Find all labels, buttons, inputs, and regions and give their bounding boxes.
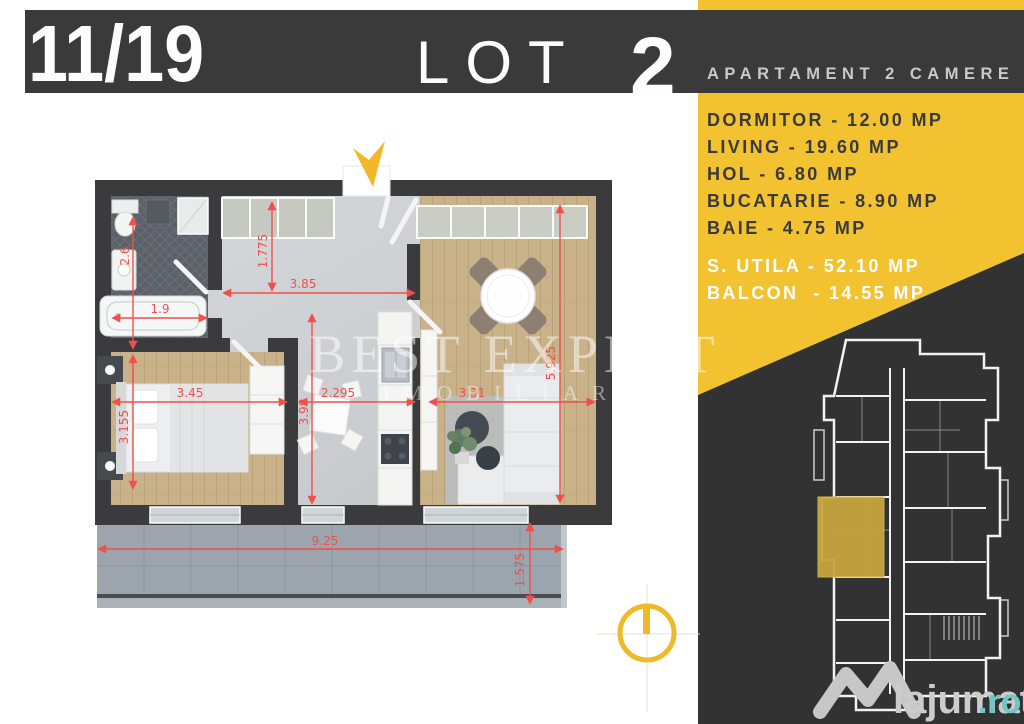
agency-watermark: BEST EXPERT IMOBILIARE <box>309 324 720 405</box>
total-utila: S. UTILA - 52.10 MP <box>707 256 925 283</box>
doors <box>176 198 440 370</box>
lot-label: LOT <box>416 33 581 93</box>
dim-living-height: 5.925 <box>544 346 558 380</box>
coffee-table <box>455 411 489 445</box>
dim-living-width: 3.31 <box>459 386 486 400</box>
watermark-line1: BEST EXPERT <box>309 324 720 384</box>
windows <box>150 507 528 523</box>
compass-icon <box>596 584 700 712</box>
living-cabinets <box>417 206 587 238</box>
apartment-plan <box>95 166 612 608</box>
balcony-edge <box>97 594 567 598</box>
bed-headboard <box>116 382 126 474</box>
room-living: LIVING - 19.60 MP <box>707 137 943 164</box>
kitchen-sink <box>382 348 409 382</box>
stove <box>381 434 409 464</box>
dim-balcony-depth: 1.575 <box>513 553 527 587</box>
walls <box>95 180 612 525</box>
kitchen-counter <box>378 312 412 505</box>
dim-bedroom-height: 3.155 <box>117 410 131 444</box>
dim-hall-top: 1.775 <box>256 234 270 268</box>
dim-kitchen-width: 2.295 <box>321 386 355 400</box>
room-area-list: DORMITOR - 12.00 MP LIVING - 19.60 MP HO… <box>707 110 943 245</box>
dining-table <box>481 269 535 323</box>
room-bucatarie: BUCATARIE - 8.90 MP <box>707 191 943 218</box>
total-balcon: BALCON - 14.55 MP <box>707 283 925 310</box>
dimension-labels: 2.6 1.9 1.775 3.85 3.45 3.155 3.98 2.295… <box>117 234 558 587</box>
bedroom-floor <box>111 352 284 505</box>
apartment-fraction: 11/19 <box>28 14 204 94</box>
dim-balcony-width: 9.25 <box>312 534 339 548</box>
sofa <box>504 364 560 504</box>
room-hol: HOL - 6.80 MP <box>707 164 943 191</box>
living-floor <box>420 196 596 505</box>
watermark-line2: IMOBILIARE <box>383 381 647 405</box>
kitchen-table <box>310 395 351 436</box>
room-dormitor: DORMITOR - 12.00 MP <box>707 110 943 137</box>
dimension-lines <box>99 203 594 603</box>
plant <box>447 427 477 464</box>
entrance-arrow-icon <box>353 141 385 187</box>
hall-cabinets <box>222 198 334 238</box>
total-area-list: S. UTILA - 52.10 MP BALCON - 14.55 MP <box>707 256 925 310</box>
dim-hall-width: 3.85 <box>290 277 317 291</box>
wardrobe <box>250 366 284 454</box>
bed <box>126 384 248 472</box>
living-furniture <box>421 255 562 504</box>
dim-tub: 1.9 <box>150 302 169 316</box>
dim-bath-height: 2.6 <box>118 246 132 265</box>
apartment-subtitle: APARTAMENT 2 CAMERE <box>707 66 1014 83</box>
rug <box>446 396 562 504</box>
dining-chairs <box>467 255 549 337</box>
bathtub <box>100 296 206 336</box>
bathroom-fixtures <box>100 198 208 336</box>
entrance-threshold <box>343 166 390 196</box>
kitchen-furniture <box>297 312 412 505</box>
balcony <box>97 523 567 608</box>
dim-kitchen-height: 3.98 <box>297 399 311 426</box>
tv-cabinet <box>421 330 437 470</box>
lot-number: 2 <box>630 26 676 108</box>
coffee-table-small <box>476 446 500 470</box>
room-baie: BAIE - 4.75 MP <box>707 218 943 245</box>
listing-poster: 11/19 LOT 2 APARTAMENT 2 CAMERE DORMITOR… <box>0 0 1024 724</box>
bathroom-floor <box>111 196 208 338</box>
dim-bedroom-width: 3.45 <box>177 386 204 400</box>
bedroom-furniture <box>97 356 284 480</box>
hall-floor <box>111 196 596 505</box>
